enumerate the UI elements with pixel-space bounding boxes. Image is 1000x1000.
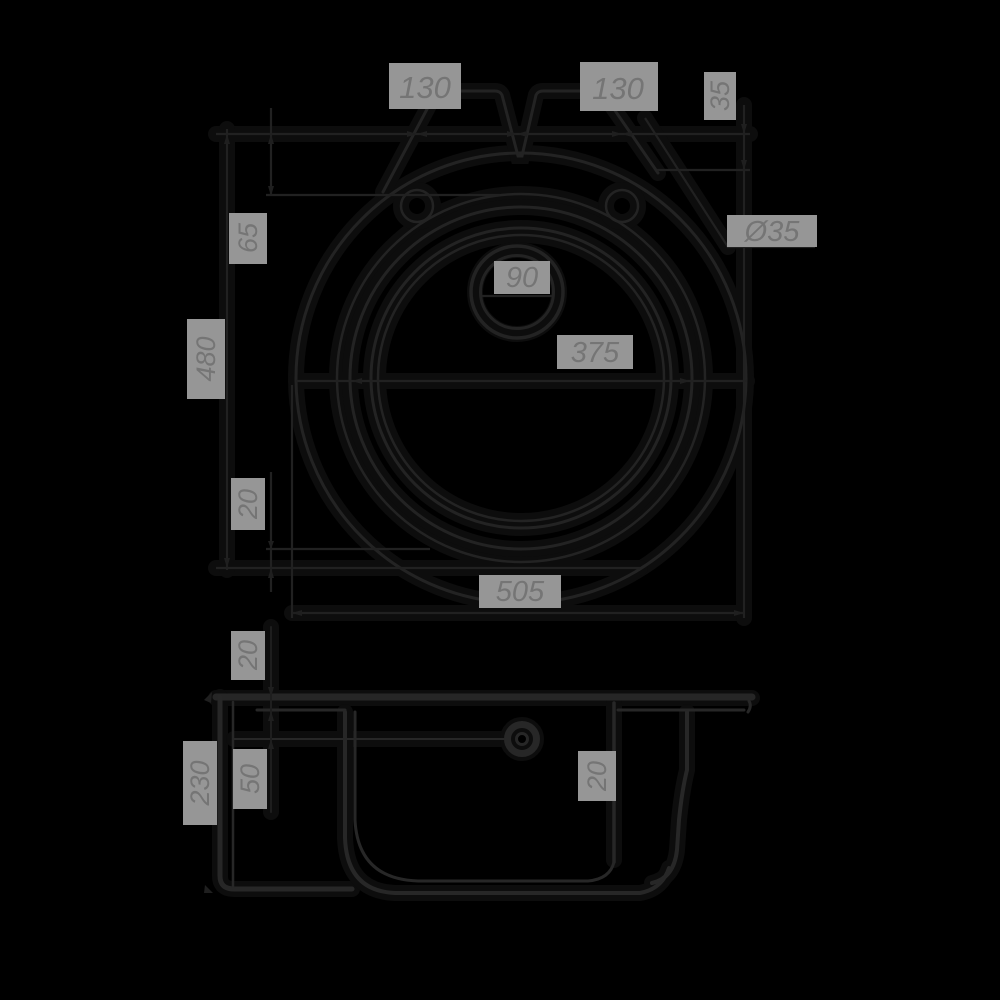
svg-text:35: 35 xyxy=(705,80,735,111)
svg-text:20: 20 xyxy=(582,761,612,792)
svg-text:20: 20 xyxy=(233,489,263,520)
svg-text:50: 50 xyxy=(235,764,265,794)
svg-text:65: 65 xyxy=(233,222,263,253)
svg-text:230: 230 xyxy=(185,760,215,806)
svg-text:20: 20 xyxy=(233,640,263,671)
svg-text:130: 130 xyxy=(592,71,644,106)
svg-text:130: 130 xyxy=(399,70,451,105)
svg-text:Ø35: Ø35 xyxy=(744,216,801,248)
svg-text:375: 375 xyxy=(571,337,620,369)
svg-text:90: 90 xyxy=(506,262,538,294)
svg-text:505: 505 xyxy=(496,576,545,608)
svg-text:480: 480 xyxy=(191,336,221,381)
